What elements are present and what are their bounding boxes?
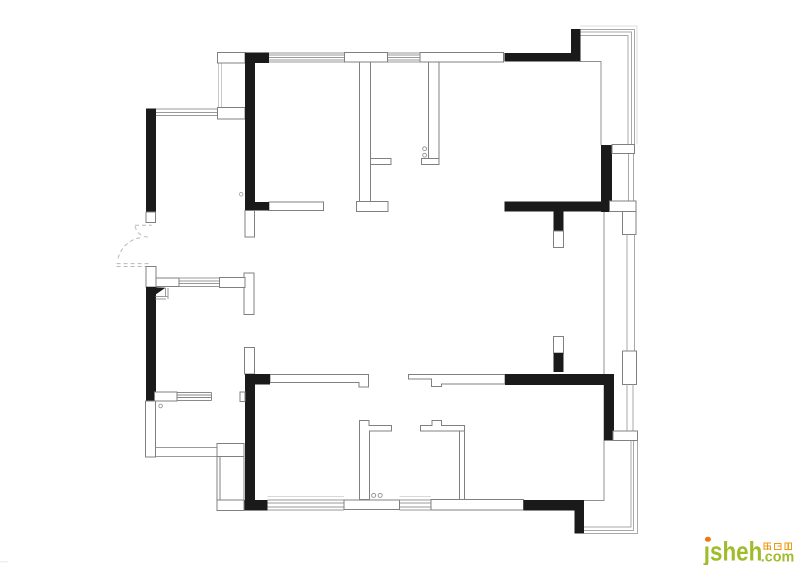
svg-text:.com: .com — [761, 549, 795, 565]
